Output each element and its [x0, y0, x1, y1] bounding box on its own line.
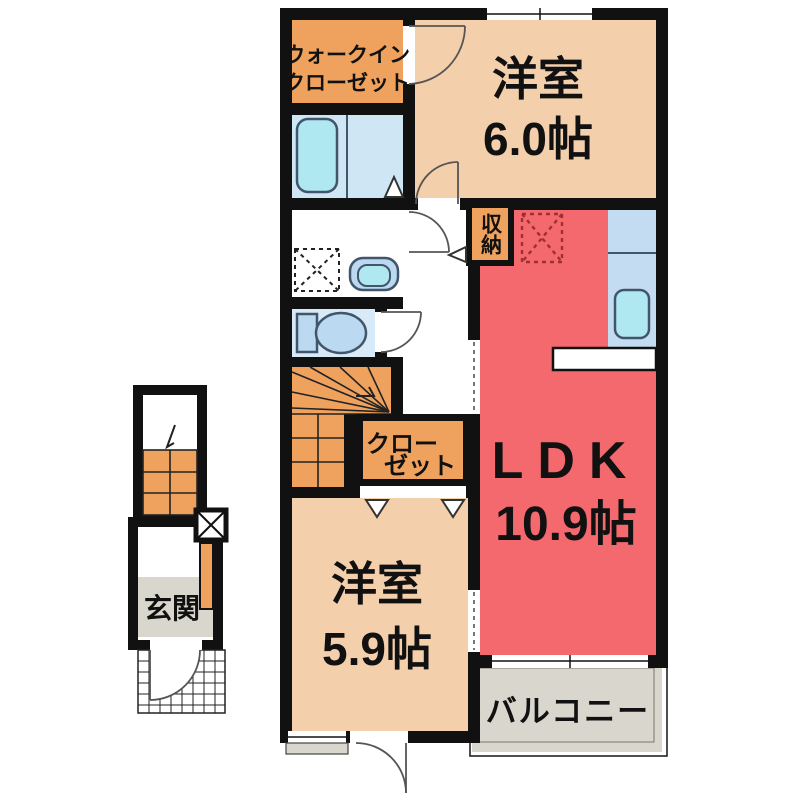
vanity-sink	[350, 258, 398, 290]
bathtub	[297, 119, 337, 192]
floorplan-canvas: ウォークイン クローゼット 洋室 6.0帖 収納 LDK 10.9帖 クロー ゼ…	[0, 0, 800, 800]
label-wic-line1: ウォークイン	[284, 44, 410, 67]
label-bedroom6-area: 6.0帖	[483, 113, 593, 165]
ldk-sliding-door	[468, 340, 480, 414]
window-sill	[286, 743, 348, 754]
shoe-cabinet	[200, 543, 213, 609]
room-bedroom-6	[415, 20, 656, 198]
meter-box	[196, 510, 226, 540]
label-bedroom59-name: 洋室	[331, 558, 423, 610]
window-bedroom6-top	[487, 8, 592, 20]
label-ldk-name: LDK	[492, 432, 641, 490]
door-bedroom59-exit	[350, 731, 408, 793]
entrance-structure	[128, 385, 226, 713]
bedroom59-sliding-door	[468, 590, 480, 652]
window-bedroom59-bottom	[286, 731, 348, 754]
label-wic-line2: クローゼット	[284, 71, 410, 95]
label-bedroom59-area: 5.9帖	[322, 623, 432, 675]
label-ldk-area: 10.9帖	[495, 498, 636, 551]
room-bedroom-59	[292, 498, 468, 731]
label-entrance: 玄関	[144, 592, 200, 624]
kitchen-counter	[553, 348, 656, 370]
label-storage: 収納	[479, 213, 503, 256]
floorplan-svg: ウォークイン クローゼット 洋室 6.0帖 収納 LDK 10.9帖 クロー ゼ…	[0, 0, 800, 800]
label-bedroom6-name: 洋室	[492, 53, 584, 105]
toilet-fixture	[297, 313, 366, 353]
kitchen-sink	[615, 290, 649, 338]
label-balcony: バルコニー	[486, 694, 650, 729]
label-closet-line2: ゼット	[384, 453, 456, 480]
window-balcony-slider	[492, 655, 648, 668]
closet-door-track	[360, 486, 466, 498]
